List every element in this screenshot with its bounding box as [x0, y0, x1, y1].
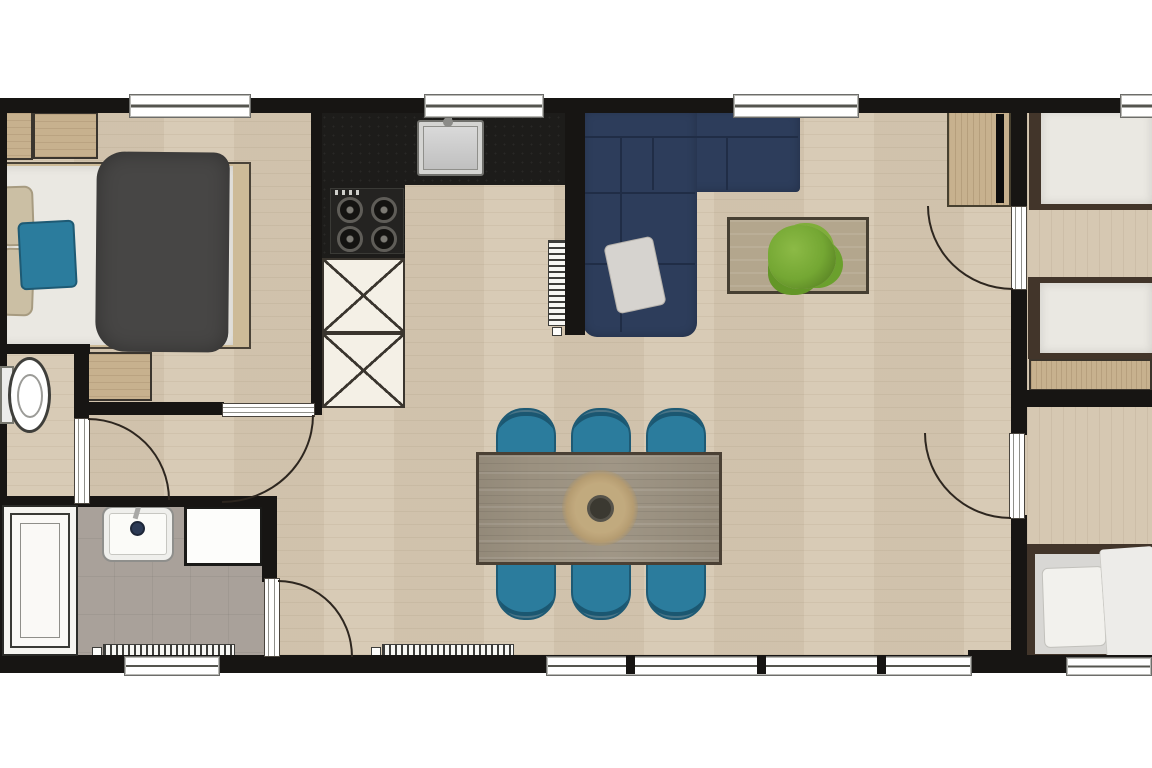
floor-plan-canvas: [0, 0, 1152, 768]
door-leaf-bedroom2: [1011, 206, 1027, 290]
wall-right-lower: [1011, 515, 1027, 660]
dining-chair-2: [571, 408, 631, 458]
door-leaf-bedroom3: [1009, 433, 1025, 519]
kitchen-radiator-cap: [552, 327, 562, 336]
single-bed-2-mattress: [1040, 283, 1152, 353]
dining-chair-4: [496, 558, 556, 620]
shower: [2, 505, 78, 656]
wall-kitchen-living: [565, 98, 585, 335]
basin-drain: [130, 521, 145, 536]
window-kitchen: [424, 94, 544, 118]
toilet-bowl-inner: [17, 374, 43, 418]
wall-bathroom-right: [262, 496, 277, 582]
shower-tray: [10, 513, 70, 648]
patio-mullion-3: [877, 656, 886, 674]
single-bed-3-duvet: [1099, 546, 1152, 659]
wall-bedroom-kitchen: [311, 113, 322, 415]
patio-mullion-1: [626, 656, 635, 674]
dining-chair-5: [571, 558, 631, 620]
kitchen-base-cabinet-2: [322, 333, 405, 408]
bathroom-cabinet: [184, 506, 263, 566]
sofa-seam-v2: [726, 138, 728, 190]
hob-controls: [335, 190, 363, 195]
window-master-bedroom: [129, 94, 251, 118]
single-bed-1-mattress: [1041, 111, 1152, 204]
bowl: [587, 495, 614, 522]
patio-mullion-2: [757, 656, 766, 674]
hob-burner-4: [371, 226, 397, 252]
kitchen-radiator-vertical: [548, 240, 566, 326]
shower-tray-inner: [20, 523, 60, 638]
wardrobe-master-wide: [33, 112, 98, 159]
dark-duvet: [95, 151, 230, 352]
tv-screen: [996, 114, 1004, 203]
wall-bedrooms-divider: [1011, 390, 1152, 407]
window-bedroom3: [1066, 657, 1152, 676]
sofa-seam-chaise-1: [585, 192, 695, 194]
single-bed-3-pillow: [1042, 566, 1107, 648]
dining-chair-6: [646, 558, 706, 620]
wall-bottom-pier: [968, 650, 1015, 673]
window-living-top: [733, 94, 859, 118]
wall-right-mid: [1011, 286, 1027, 435]
hob-burner-3: [337, 226, 363, 252]
window-bedroom2: [1120, 94, 1152, 118]
wall-right-upper: [1011, 98, 1027, 208]
dining-chair-1: [496, 408, 556, 458]
kitchen-sink: [417, 120, 484, 176]
plant: [768, 225, 836, 289]
side-wardrobe: [84, 352, 152, 401]
sofa-seam-v1: [652, 138, 654, 190]
sink-faucet-spout: [443, 117, 453, 127]
kitchen-base-cabinet-1: [322, 258, 405, 333]
low-wardrobe: [1029, 359, 1152, 391]
sofa-seam-back: [585, 136, 798, 138]
dining-chair-3: [646, 408, 706, 458]
wall-wc-right: [74, 352, 89, 420]
teal-cushion: [17, 220, 77, 291]
window-bathroom: [124, 656, 220, 676]
hob-burner-2: [371, 197, 397, 223]
hob-burner-1: [337, 197, 363, 223]
wall-bedroom-bottom: [83, 402, 224, 415]
